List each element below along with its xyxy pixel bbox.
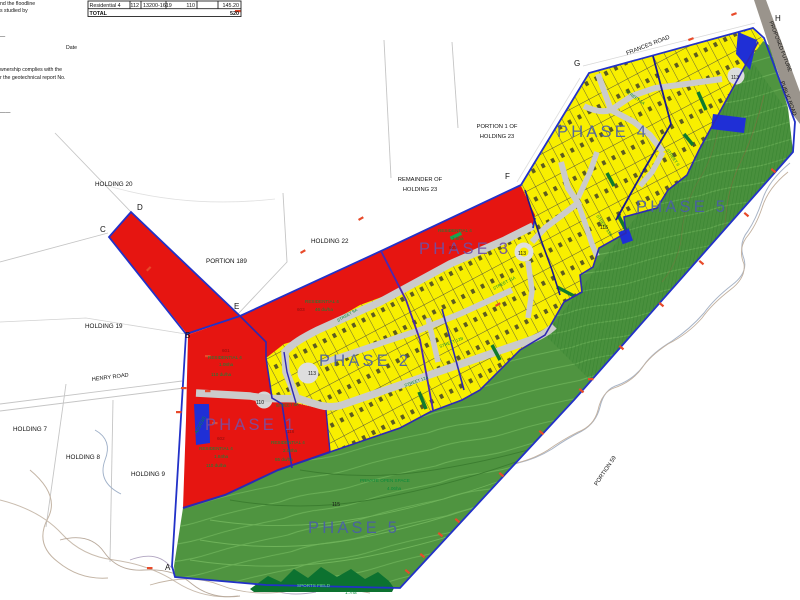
svg-text:4.06ha: 4.06ha — [387, 486, 401, 491]
svg-text:605: 605 — [449, 245, 457, 250]
svg-text:F: F — [505, 172, 510, 181]
svg-text:601: 601 — [222, 348, 230, 353]
svg-text:PHASE 4: PHASE 4 — [557, 123, 649, 141]
svg-text:E: E — [234, 302, 239, 311]
svg-text:RESIDENTIAL 4: RESIDENTIAL 4 — [199, 446, 233, 451]
svg-text:PHASE 5: PHASE 5 — [308, 519, 400, 537]
svg-text:PHASE 2: PHASE 2 — [319, 352, 411, 370]
svg-text:—: — — [0, 34, 6, 40]
svg-text:113: 113 — [731, 75, 739, 81]
svg-text:HOLDING 19: HOLDING 19 — [85, 323, 123, 330]
svg-text:s studied by: s studied by — [0, 8, 28, 14]
svg-text:1.7ha: 1.7ha — [345, 590, 357, 595]
svg-text:46 du/ha: 46 du/ha — [315, 307, 333, 312]
svg-text:A: A — [165, 563, 171, 572]
svg-text:112: 112 — [130, 3, 139, 9]
svg-text:1.84ha: 1.84ha — [214, 454, 228, 459]
svg-text:RESIDENTIAL 4: RESIDENTIAL 4 — [438, 228, 472, 233]
svg-text:115: 115 — [600, 225, 608, 231]
svg-text:55 du/ha: 55 du/ha — [275, 457, 293, 462]
svg-text:SPORTS FIELD: SPORTS FIELD — [297, 583, 331, 588]
svg-text:PHASE 1: PHASE 1 — [205, 416, 297, 434]
svg-text:PHASE 5: PHASE 5 — [636, 198, 728, 216]
svg-text:110: 110 — [256, 400, 264, 406]
svg-text:13200-1619: 13200-1619 — [143, 3, 172, 9]
svg-text:110: 110 — [186, 3, 195, 9]
svg-text:PORTION 1 OF: PORTION 1 OF — [477, 124, 518, 130]
svg-text:520: 520 — [230, 11, 239, 17]
svg-text:r the geotechnical report No.: r the geotechnical report No. — [0, 75, 65, 81]
svg-text:REMAINDER OF: REMAINDER OF — [398, 177, 443, 183]
svg-text:110 du/ha: 110 du/ha — [206, 463, 227, 468]
svg-text:113: 113 — [518, 251, 526, 257]
svg-text:PRIVATE OPEN SPACE: PRIVATE OPEN SPACE — [360, 478, 410, 483]
svg-text:HOLDING 22: HOLDING 22 — [311, 238, 349, 245]
svg-text:602: 602 — [217, 436, 225, 441]
svg-text:H: H — [775, 14, 781, 23]
svg-text:1.08ha: 1.08ha — [219, 362, 233, 367]
svg-text:603: 603 — [297, 307, 305, 312]
svg-text:2.08ha: 2.08ha — [283, 448, 297, 453]
svg-text:1.8ha: 1.8ha — [452, 236, 464, 241]
svg-text:D: D — [137, 203, 143, 212]
svg-text:RESIDENTIAL 4: RESIDENTIAL 4 — [271, 440, 305, 445]
svg-text:HOLDING 7: HOLDING 7 — [13, 426, 47, 433]
svg-text:110 du/ha: 110 du/ha — [211, 372, 232, 377]
svg-text:HOLDING 8: HOLDING 8 — [66, 454, 100, 461]
svg-text:——: —— — [0, 110, 11, 116]
svg-text:113: 113 — [308, 371, 316, 377]
svg-text:115: 115 — [332, 502, 340, 508]
svg-text:nd the floodline: nd the floodline — [0, 1, 35, 7]
svg-text:HOLDING 20: HOLDING 20 — [95, 181, 133, 188]
svg-text:116: 116 — [287, 429, 295, 434]
svg-text:PHASE 3: PHASE 3 — [419, 240, 511, 258]
svg-text:PORTION 189: PORTION 189 — [206, 258, 247, 265]
svg-text:C: C — [100, 225, 106, 234]
svg-text:HOLDING 23: HOLDING 23 — [480, 134, 514, 140]
svg-text:wnership complies with the: wnership complies with the — [0, 67, 62, 73]
svg-text:TOTAL: TOTAL — [90, 11, 108, 17]
svg-text:G: G — [574, 59, 580, 68]
svg-text:Date: Date — [66, 45, 77, 51]
svg-text:145.20: 145.20 — [223, 3, 240, 9]
svg-text:Residential 4: Residential 4 — [90, 3, 121, 9]
svg-text:RESIDENTIAL 4: RESIDENTIAL 4 — [305, 299, 339, 304]
svg-text:HOLDING 9: HOLDING 9 — [131, 471, 165, 478]
svg-text:HOLDING 23: HOLDING 23 — [403, 187, 437, 193]
svg-text:RESIDENTIAL 4: RESIDENTIAL 4 — [208, 355, 242, 360]
svg-text:B: B — [185, 331, 190, 340]
